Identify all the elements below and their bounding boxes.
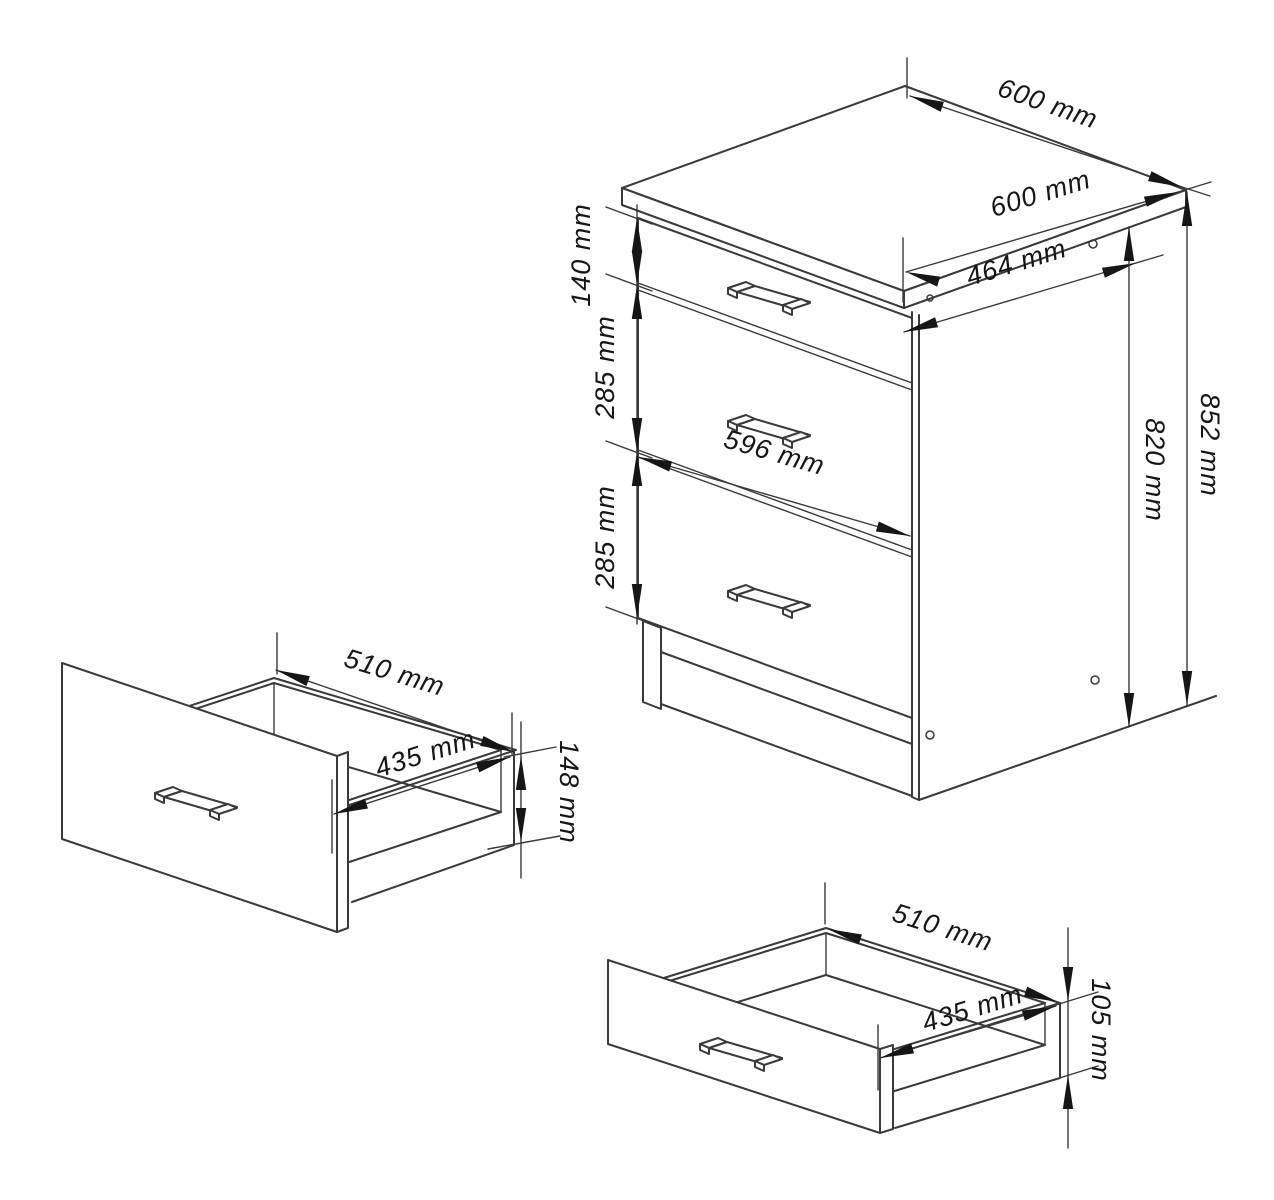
technical-drawing-page: 140 mm 285 mm 285 mm 600 mm 600 mm: [0, 0, 1274, 1200]
drawer-side-view: 510 mm 435 mm 148 mm: [62, 633, 584, 932]
dim-label-285-a: 285 mm: [590, 315, 620, 420]
screw-hole: [926, 731, 934, 739]
drawer-front-panel-edge: [880, 1045, 893, 1133]
technical-drawing: 140 mm 285 mm 285 mm 600 mm 600 mm: [0, 0, 1274, 1200]
cabinet-view: 140 mm 285 mm 285 mm 600 mm 600 mm: [566, 58, 1225, 800]
cabinet-front-leg: [643, 621, 661, 709]
dim-label-148: 148 mm: [554, 740, 584, 844]
dim-label-140: 140 mm: [566, 203, 596, 307]
drawer-bottom-view: 510 mm 435 mm 105 mm: [608, 883, 1116, 1148]
dim-label-285-b: 285 mm: [590, 485, 620, 590]
screw-hole: [1091, 676, 1099, 684]
dim-label-105: 105 mm: [1086, 978, 1116, 1082]
dim-label-820: 820 mm: [1140, 418, 1170, 522]
dim-carcass-height: 820 mm: [1124, 227, 1170, 727]
dim-label-852: 852 mm: [1195, 393, 1225, 497]
dim-label-510-side: 510 mm: [341, 643, 449, 702]
side-panel-bottom-edge: [912, 696, 1216, 800]
drawer-front-panel-edge: [337, 752, 348, 932]
dim-label-510-bottom: 510 mm: [889, 898, 997, 958]
dim-total-height: 852 mm: [1182, 192, 1225, 705]
